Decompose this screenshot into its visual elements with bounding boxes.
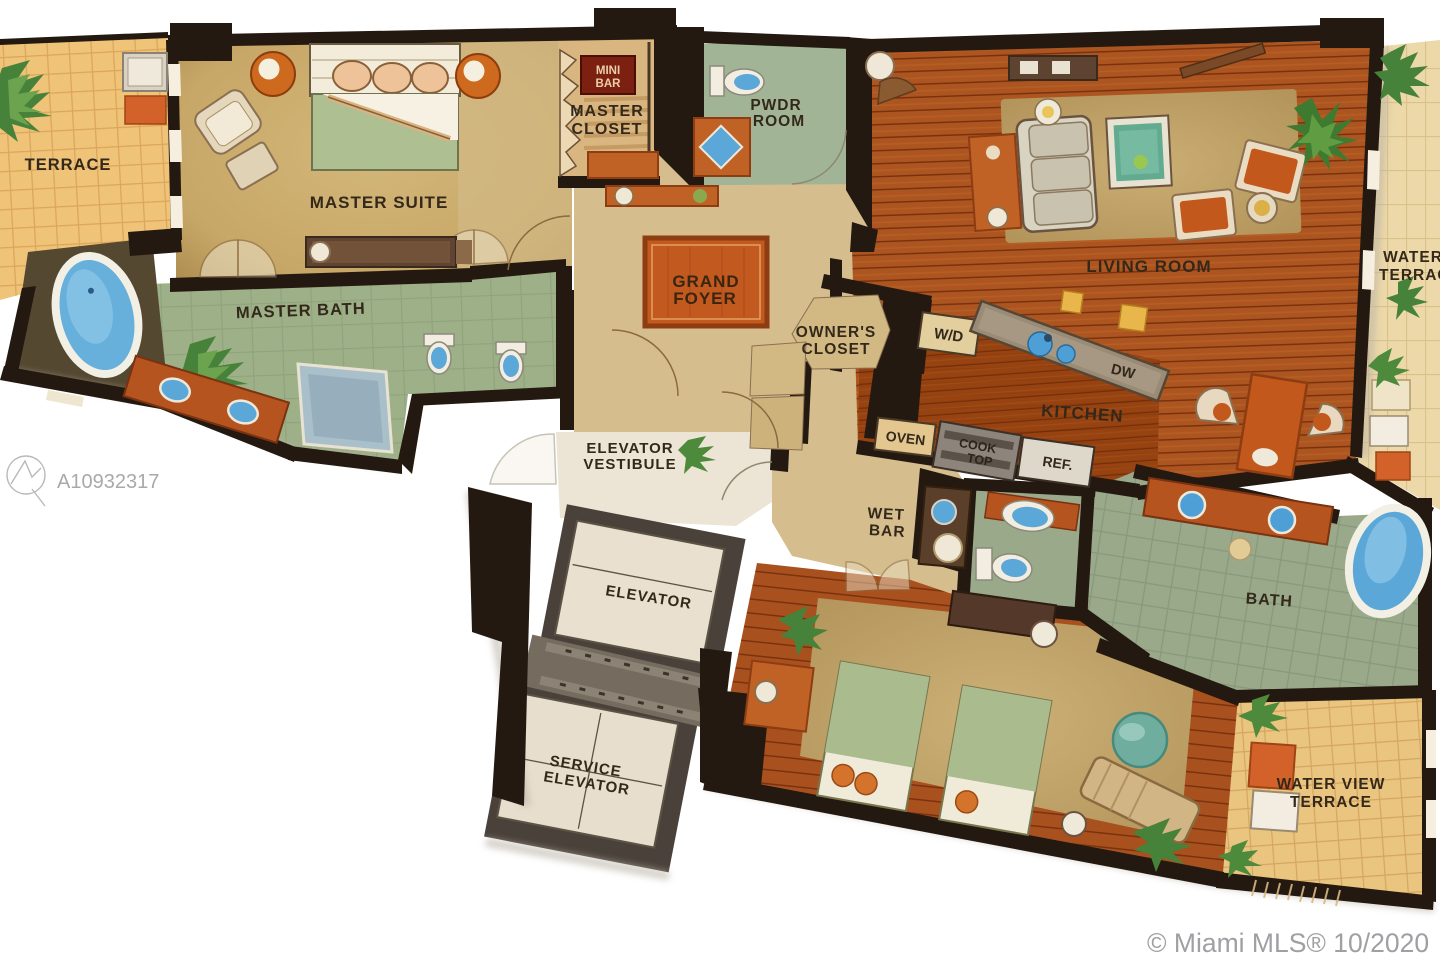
svg-text:BAR: BAR: [869, 522, 906, 541]
svg-text:VESTIBULE: VESTIBULE: [583, 456, 676, 473]
svg-text:LIVING ROOM: LIVING ROOM: [1086, 257, 1211, 276]
svg-text:WATER: WATER: [1383, 249, 1440, 266]
svg-text:CLOSET: CLOSET: [572, 121, 643, 138]
svg-text:WET: WET: [867, 505, 905, 524]
svg-text:BATH: BATH: [1245, 590, 1293, 610]
svg-text:BAR: BAR: [596, 78, 622, 90]
svg-text:A10932317: A10932317: [57, 471, 159, 493]
svg-text:FOYER: FOYER: [673, 289, 737, 308]
svg-text:CLOSET: CLOSET: [802, 341, 871, 358]
svg-text:ELEVATOR: ELEVATOR: [586, 440, 673, 457]
svg-text:MASTER: MASTER: [570, 103, 644, 120]
svg-text:ROOM: ROOM: [753, 113, 805, 130]
svg-text:MASTER SUITE: MASTER SUITE: [310, 193, 449, 212]
svg-text:TERRACE: TERRACE: [25, 156, 112, 174]
svg-text:WATER VIEW: WATER VIEW: [1277, 776, 1386, 793]
svg-text:© Miami MLS® 10/2020: © Miami MLS® 10/2020: [1147, 928, 1429, 958]
svg-text:TERRACE: TERRACE: [1379, 267, 1440, 284]
svg-text:TERRACE: TERRACE: [1290, 794, 1372, 811]
svg-text:MINI: MINI: [596, 65, 620, 77]
svg-text:PWDR: PWDR: [750, 97, 801, 114]
svg-text:OWNER'S: OWNER'S: [796, 324, 876, 341]
